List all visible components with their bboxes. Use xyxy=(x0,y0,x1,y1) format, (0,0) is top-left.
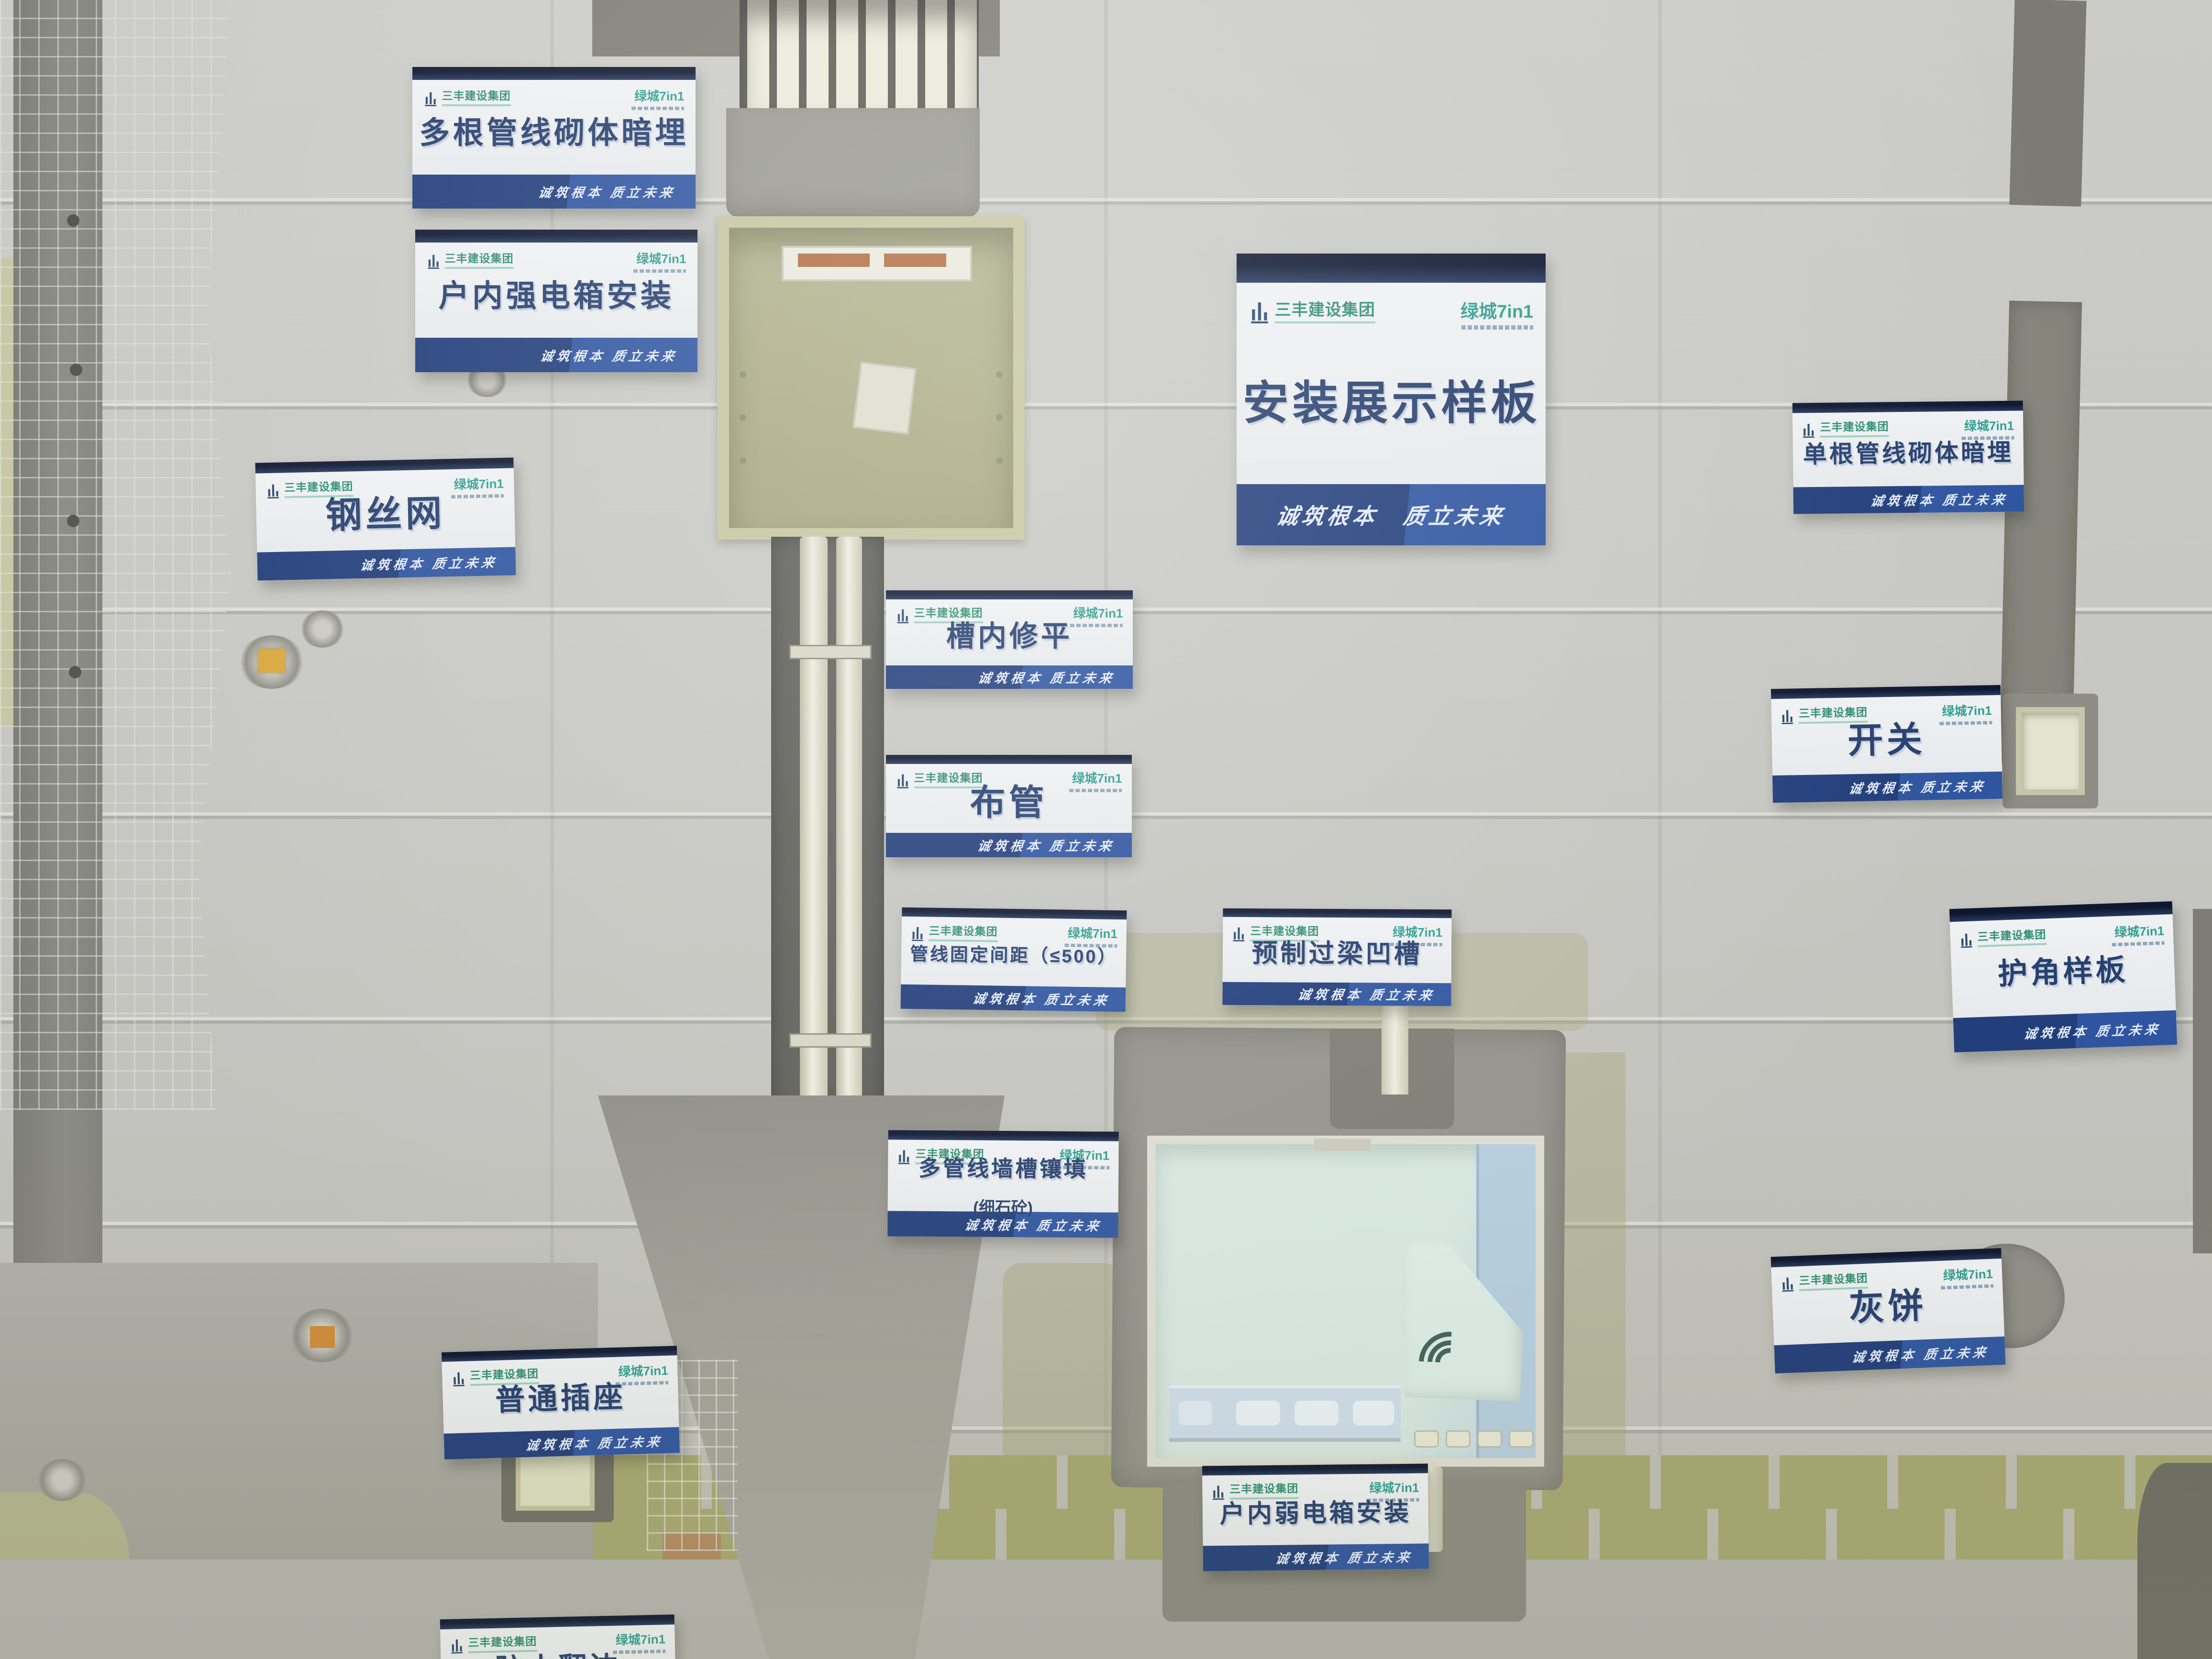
sign-slogan-strip: 诚筑根本 质立未来 xyxy=(1793,485,2024,514)
sign-slogan-strip: 诚筑根本 质立未来 xyxy=(1237,484,1546,545)
box-tab xyxy=(1314,1139,1371,1151)
slogan-text: 诚筑根本 质立未来 xyxy=(539,346,679,365)
slogan-text: 诚筑根本 质立未来 xyxy=(971,988,1112,1009)
weak-electric-box xyxy=(1147,1136,1544,1467)
sign-title: 安装展示样板 xyxy=(1243,379,1539,428)
partner-logo-subtext xyxy=(2112,941,2165,947)
sign-multi-pipe-wall-filling: 三丰建设集团 绿城7in1 多管线墙槽镶填 (细石砼) 诚筑根本 质立未来 xyxy=(887,1130,1119,1238)
sign-title: 预制过梁凹槽 xyxy=(1227,940,1447,968)
sign-body: 三丰建设集团 绿城7in1 防水翻边 xyxy=(440,1625,676,1659)
sign-body: 三丰建设集团 绿城7in1 预制过梁凹槽 xyxy=(1223,917,1452,983)
building-bars-icon xyxy=(427,254,441,269)
sign-top-strip xyxy=(412,67,696,80)
mortar-patch-above-box xyxy=(726,108,980,217)
slogan-text: 诚筑根本 质立未来 xyxy=(1274,499,1508,531)
building-bars-icon xyxy=(1249,300,1271,323)
building-bars-icon xyxy=(1802,422,1816,438)
slogan-text: 诚筑根本 质立未来 xyxy=(1274,1547,1415,1567)
pipe-chase xyxy=(771,537,884,1107)
partner-logo: 绿城7in1 xyxy=(1961,416,2014,440)
sign-title: 管线固定间距（≤500） xyxy=(906,945,1122,967)
conduit-pipe xyxy=(836,537,862,1107)
sign-title: 户内强电箱安装 xyxy=(421,280,692,312)
partner-logo: 绿城7in1 xyxy=(631,87,684,110)
sign-switch: 三丰建设集团 绿城7in1 开关 诚筑根本 质立未来 xyxy=(1771,685,2002,803)
lintel-conduit-stub xyxy=(1382,999,1408,1095)
partner-logo-subtext xyxy=(633,269,686,273)
sign-single-pipe-masonry: 三丰建设集团 绿城7in1 单根管线砌体暗埋 诚筑根本 质立未来 xyxy=(1792,400,2024,514)
sign-slogan-strip: 诚筑根本 质立未来 xyxy=(412,175,696,209)
slogan-text: 诚筑根本 质立未来 xyxy=(359,552,499,574)
slogan-text: 诚筑根本 质立未来 xyxy=(1869,489,2009,509)
company-logo: 三丰建设集团 xyxy=(1802,417,1889,438)
sign-body: 三丰建设集团 绿城7in1 普通插座 xyxy=(442,1355,679,1434)
slogan-text: 诚筑根本 质立未来 xyxy=(1851,1342,1991,1366)
socket-box xyxy=(516,1449,595,1511)
sign-top-strip xyxy=(886,755,1132,764)
sign-body: 三丰建设集团 绿城7in1 钢丝网 xyxy=(255,468,515,552)
building-bars-icon xyxy=(266,483,281,498)
top-pipe-louver xyxy=(740,0,979,108)
sign-body: 三丰建设集团 绿城7in1 布管 xyxy=(886,764,1132,832)
slogan-text: 诚筑根本 质立未来 xyxy=(976,836,1116,854)
sign-title: 槽内修平 xyxy=(891,621,1128,651)
slogan-text: 诚筑根本 质立未来 xyxy=(963,1215,1104,1234)
sign-steel-wire-mesh: 三丰建设集团 绿城7in1 钢丝网 诚筑根本 质立未来 xyxy=(255,457,516,580)
strong-electric-box xyxy=(718,216,1025,540)
sign-body: 三丰建设集团 绿城7in1 单根管线砌体暗埋 xyxy=(1792,410,2024,487)
sign-slogan-strip: 诚筑根本 质立未来 xyxy=(257,547,516,580)
dark-corner-patch xyxy=(2137,1463,2212,1659)
yellow-marker-pad xyxy=(258,649,285,673)
sign-body: 三丰建设集团 绿城7in1 安装展示样板 xyxy=(1237,283,1546,484)
company-logo: 三丰建设集团 xyxy=(1249,297,1375,323)
smooth-concrete-band xyxy=(0,1559,2212,1659)
sign-waterproof-flange: 三丰建设集团 绿城7in1 防水翻边 诚筑根本 质立未来 xyxy=(440,1615,677,1659)
company-logo: 三丰建设集团 xyxy=(910,921,998,942)
sign-title: 多管线墙槽镶填 xyxy=(893,1157,1114,1182)
mortar-dab xyxy=(37,1459,87,1501)
sign-slogan-strip: 诚筑根本 质立未来 xyxy=(1222,982,1451,1006)
sign-body: 三丰建设集团 绿城7in1 管线固定间距（≤500） xyxy=(901,917,1127,988)
sign-title: 护角样板 xyxy=(1956,952,2170,991)
slogan-text: 诚筑根本 质立未来 xyxy=(537,182,677,201)
sign-corner-guard: 三丰建设集团 绿城7in1 护角样板 诚筑根本 质立未来 xyxy=(1949,901,2177,1052)
sign-top-strip xyxy=(1237,254,1546,283)
building-bars-icon xyxy=(1781,1276,1795,1292)
sign-title: 多根管线砌体暗埋 xyxy=(418,117,690,149)
company-logo: 三丰建设集团 xyxy=(450,1632,537,1654)
sign-title: 钢丝网 xyxy=(261,493,510,537)
green-tint-patch xyxy=(1003,1263,1122,1488)
sign-body: 三丰建设集团 绿城7in1 户内弱电箱安装 xyxy=(1202,1473,1429,1546)
sign-multi-pipe-masonry: 三丰建设集团 绿城7in1 多根管线砌体暗埋 诚筑根本 质立未来 xyxy=(412,67,696,209)
sign-slogan-strip: 诚筑根本 质立未来 xyxy=(901,984,1126,1012)
partner-logo-subtext xyxy=(631,107,684,110)
orange-marker-pad xyxy=(310,1326,335,1348)
sign-slogan-strip: 诚筑根本 质立未来 xyxy=(1772,772,2002,803)
mounting-bracket xyxy=(1169,1385,1401,1442)
sign-top-strip xyxy=(886,590,1133,599)
pipe-clamp xyxy=(789,645,872,659)
sign-title: 普通插座 xyxy=(447,1380,674,1417)
screw-dots xyxy=(740,371,746,378)
construction-sample-wall-photo: 三丰建设集团 绿城7in1 多根管线砌体暗埋 诚筑根本 质立未来 三丰建设集团 … xyxy=(0,0,2212,1659)
building-bars-icon xyxy=(1211,1484,1226,1500)
sign-slogan-strip: 诚筑根本 质立未来 xyxy=(886,833,1132,857)
building-bars-icon xyxy=(424,91,438,106)
building-bars-icon xyxy=(1781,708,1795,724)
green-tint-patch xyxy=(1562,1052,1626,1464)
sign-title: 开关 xyxy=(1776,719,1997,761)
slogan-text: 诚筑根本 质立未来 xyxy=(977,668,1117,686)
sign-ordinary-socket: 三丰建设集团 绿城7in1 普通插座 诚筑根本 质立未来 xyxy=(442,1346,680,1460)
sign-slogan-strip: 诚筑根本 质立未来 xyxy=(886,665,1133,689)
bolt-dots xyxy=(67,214,79,227)
sign-title: 布管 xyxy=(891,784,1127,821)
sign-body: 三丰建设集团 绿城7in1 户内强电箱安装 xyxy=(415,243,697,338)
sign-body: 三丰建设集团 绿城7in1 多根管线砌体暗埋 xyxy=(412,80,696,175)
slogan-text: 诚筑根本 质立未来 xyxy=(1847,776,1988,797)
partner-logo: 绿城7in1 xyxy=(633,249,686,273)
building-bars-icon xyxy=(452,1371,466,1386)
sign-title: 户内弱电箱安装 xyxy=(1207,1500,1424,1528)
building-bars-icon xyxy=(910,926,925,941)
company-logo: 三丰建设集团 xyxy=(1959,925,2046,948)
sign-indoor-strong-box: 三丰建设集团 绿城7in1 户内强电箱安装 诚筑根本 质立未来 xyxy=(415,230,697,372)
slogan-text: 诚筑根本 质立未来 xyxy=(525,1431,664,1454)
mortar-chase-top-right xyxy=(2009,0,2086,207)
dark-edge-strip xyxy=(2193,909,2212,1253)
partner-logo: 绿城7in1 xyxy=(2112,921,2165,947)
mortar-dab xyxy=(300,610,344,648)
wifi-arc-icon xyxy=(1419,1311,1476,1368)
conduit-pipe xyxy=(800,537,828,1107)
company-logo: 三丰建设集团 xyxy=(1211,1479,1298,1500)
sign-slogan-strip: 诚筑根本 质立未来 xyxy=(415,338,697,372)
terminal-strip xyxy=(782,246,972,281)
switch-box xyxy=(2016,707,2085,795)
sign-indoor-weak-box: 三丰建设集团 绿城7in1 户内弱电箱安装 诚筑根本 质立未来 xyxy=(1202,1464,1429,1571)
sign-mortar-pad: 三丰建设集团 绿城7in1 灰饼 诚筑根本 质立未来 xyxy=(1770,1248,2005,1373)
building-bars-icon xyxy=(450,1638,465,1654)
company-logo: 三丰建设集团 xyxy=(427,249,514,269)
sign-precast-lintel-groove: 三丰建设集团 绿城7in1 预制过梁凹槽 诚筑根本 质立未来 xyxy=(1222,908,1451,1006)
sign-pipe-laying: 三丰建设集团 绿城7in1 布管 诚筑根本 质立未来 xyxy=(886,755,1132,857)
partner-logo: 绿城7in1 xyxy=(1065,924,1118,948)
sign-body: 三丰建设集团 绿城7in1 灰饼 xyxy=(1771,1259,2004,1346)
sign-body: 三丰建设集团 绿城7in1 护角样板 xyxy=(1950,914,2176,1018)
screw-dots xyxy=(996,371,1003,378)
sign-body: 三丰建设集团 绿城7in1 多管线墙槽镶填 (细石砼) xyxy=(888,1139,1119,1212)
slogan-text: 诚筑根本 质立未来 xyxy=(2023,1018,2162,1042)
building-bars-icon xyxy=(1232,926,1246,941)
sign-groove-leveling: 三丰建设集团 绿城7in1 槽内修平 诚筑根本 质立未来 xyxy=(886,590,1133,689)
sign-body: 三丰建设集团 绿城7in1 开关 xyxy=(1771,695,2002,775)
box-label xyxy=(852,361,917,434)
sign-main-board: 三丰建设集团 绿城7in1 安装展示样板 诚筑根本 质立未来 xyxy=(1237,254,1546,545)
company-logo: 三丰建设集团 xyxy=(424,87,511,106)
sign-pipe-fixing-spacing: 三丰建设集团 绿城7in1 管线固定间距（≤500） 诚筑根本 质立未来 xyxy=(901,907,1127,1012)
pipe-clamp xyxy=(789,1033,872,1048)
sign-title: 灰饼 xyxy=(1777,1284,1999,1329)
steel-wire-mesh-overlay xyxy=(0,0,231,1110)
partner-logo-subtext xyxy=(1461,325,1533,330)
sign-title: 单根管线砌体暗埋 xyxy=(1797,440,2019,467)
building-bars-icon xyxy=(1959,932,1974,948)
sign-slogan-strip: 诚筑根本 质立未来 xyxy=(1203,1544,1429,1571)
partner-logo: 绿城7in1 xyxy=(1460,297,1533,330)
sign-top-strip xyxy=(415,230,697,243)
conduit-knockouts xyxy=(1414,1430,1538,1449)
slogan-text: 诚筑根本 质立未来 xyxy=(1296,984,1437,1004)
sign-body: 三丰建设集团 绿城7in1 槽内修平 xyxy=(886,599,1133,665)
